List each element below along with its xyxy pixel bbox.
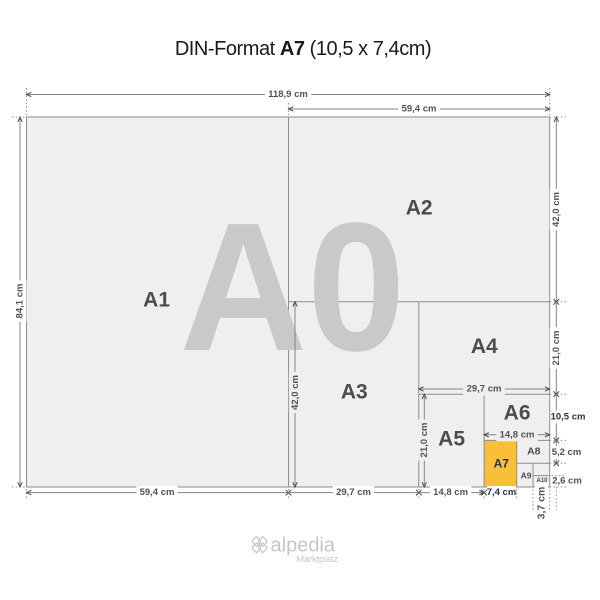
svg-text:21,0 cm: 21,0 cm — [419, 423, 430, 458]
svg-text:29,7 cm: 29,7 cm — [336, 487, 371, 498]
svg-text:10,5 cm: 10,5 cm — [551, 412, 586, 423]
svg-text:118,9 cm: 118,9 cm — [268, 89, 308, 100]
svg-text:21,0 cm: 21,0 cm — [551, 331, 562, 366]
svg-text:42,0 cm: 42,0 cm — [551, 192, 562, 227]
svg-text:Marktplatz: Marktplatz — [296, 554, 338, 564]
svg-text:42,0 cm: 42,0 cm — [290, 375, 301, 410]
svg-text:14,8 cm: 14,8 cm — [500, 429, 535, 440]
svg-text:A7: A7 — [494, 457, 510, 471]
svg-text:A0: A0 — [180, 185, 406, 390]
svg-text:A9: A9 — [521, 471, 532, 481]
svg-text:5,2 cm: 5,2 cm — [552, 447, 582, 458]
svg-text:59,4 cm: 59,4 cm — [140, 487, 175, 498]
svg-text:A8: A8 — [527, 446, 541, 458]
svg-text:A6: A6 — [504, 401, 531, 424]
svg-text:29,7 cm: 29,7 cm — [467, 384, 502, 395]
svg-text:A3: A3 — [341, 381, 368, 404]
svg-text:A1: A1 — [143, 289, 170, 312]
svg-text:2,6 cm: 2,6 cm — [552, 476, 582, 487]
svg-text:A4: A4 — [471, 335, 498, 358]
svg-text:A5: A5 — [438, 428, 465, 451]
svg-text:A2: A2 — [406, 197, 433, 220]
svg-text:3,7 cm: 3,7 cm — [535, 487, 547, 520]
svg-text:DIN-Format A7 (10,5 x 7,4cm): DIN-Format A7 (10,5 x 7,4cm) — [175, 38, 431, 60]
svg-text:84,1 cm: 84,1 cm — [15, 284, 26, 319]
svg-text:14,8 cm: 14,8 cm — [433, 487, 468, 498]
svg-text:59,4 cm: 59,4 cm — [402, 104, 437, 115]
svg-text:A10: A10 — [536, 478, 548, 484]
svg-text:7,4 cm: 7,4 cm — [487, 487, 517, 498]
